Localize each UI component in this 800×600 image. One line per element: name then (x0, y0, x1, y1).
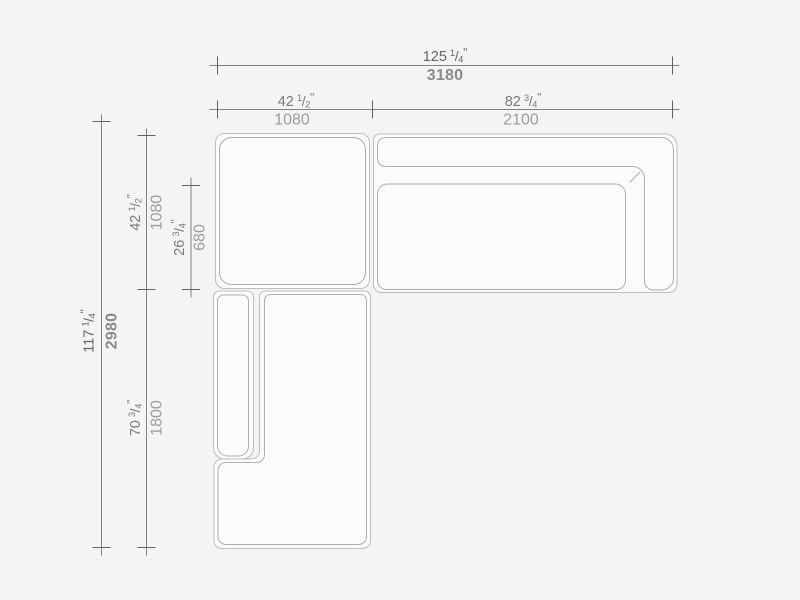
svg-text:1080: 1080 (274, 112, 310, 129)
svg-text:1080: 1080 (149, 195, 166, 231)
svg-text:2100: 2100 (503, 112, 539, 129)
svg-text:1800: 1800 (149, 400, 166, 436)
svg-text:2980: 2980 (104, 313, 121, 349)
svg-text:680: 680 (192, 224, 209, 251)
svg-text:3180: 3180 (427, 67, 463, 84)
